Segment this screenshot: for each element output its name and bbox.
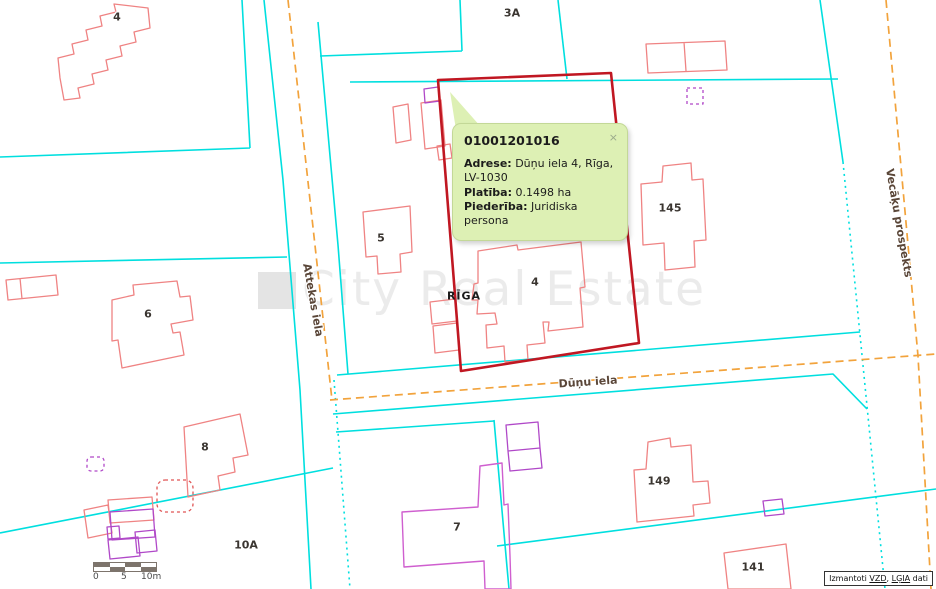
scale-bar-ticks: 0 5 10m	[93, 572, 177, 583]
attribution-link-lgia[interactable]: LĢIA	[892, 574, 911, 583]
label-building-149: 149	[648, 475, 671, 488]
label-building-8: 8	[201, 441, 209, 454]
building-5	[363, 206, 412, 274]
popup-field-address: Adrese: Dūņu iela 4, Rīga, LV-1030	[464, 157, 616, 186]
popup-field-ownership: Piederība: Juridiska persona	[464, 200, 616, 229]
popup-cadastre-number: 01001201016	[464, 133, 616, 148]
label-building-4-topleft: 4	[113, 11, 121, 24]
label-building-5: 5	[377, 232, 385, 245]
label-parcel-10a: 10A	[234, 539, 258, 552]
attribution-suffix: dati	[910, 574, 928, 583]
popup-close-icon[interactable]: ×	[609, 132, 618, 143]
street-attekas-centerline	[288, 0, 332, 400]
popup-field-area-label: Platība:	[464, 186, 512, 199]
attribution-box: Izmantoti VZD, LĢIA dati	[824, 571, 933, 586]
scale-bar: 0 5 10m	[93, 562, 177, 583]
parcel-info-popup: × 01001201016 Adrese: Dūņu iela 4, Rīga,…	[452, 123, 628, 241]
building-4-topleft	[58, 4, 150, 100]
buildings-red	[6, 4, 791, 589]
street-dunu-centerline	[330, 354, 936, 400]
popup-field-area-value: 0.1498 ha	[515, 186, 571, 199]
city-label-riga: RĪGA	[447, 290, 481, 303]
scale-tick-10m: 10m	[141, 572, 161, 582]
label-building-145: 145	[659, 202, 682, 215]
cadastral-map-view: City Real Estate	[0, 0, 936, 589]
building-8	[184, 414, 248, 497]
label-building-141: 141	[742, 561, 765, 574]
attribution-link-vzd[interactable]: VZD	[869, 574, 886, 583]
label-building-4-main: 4	[531, 276, 539, 289]
street-vecaku-centerline	[886, 0, 931, 589]
scale-tick-5: 5	[121, 572, 127, 582]
building-6	[112, 281, 193, 368]
label-parcel-3a: 3A	[504, 7, 520, 20]
building-4-main	[472, 242, 585, 362]
scale-bar-segments	[93, 562, 157, 572]
label-building-6: 6	[144, 308, 152, 321]
label-building-7: 7	[453, 521, 461, 534]
building-145	[641, 163, 706, 270]
popup-field-address-label: Adrese:	[464, 157, 512, 170]
popup-field-area: Platība: 0.1498 ha	[464, 186, 616, 200]
building-topright	[646, 41, 727, 73]
popup-field-ownership-label: Piederība:	[464, 200, 528, 213]
building-149	[634, 438, 710, 522]
scale-tick-0: 0	[93, 572, 99, 582]
attribution-prefix: Izmantoti	[829, 574, 869, 583]
